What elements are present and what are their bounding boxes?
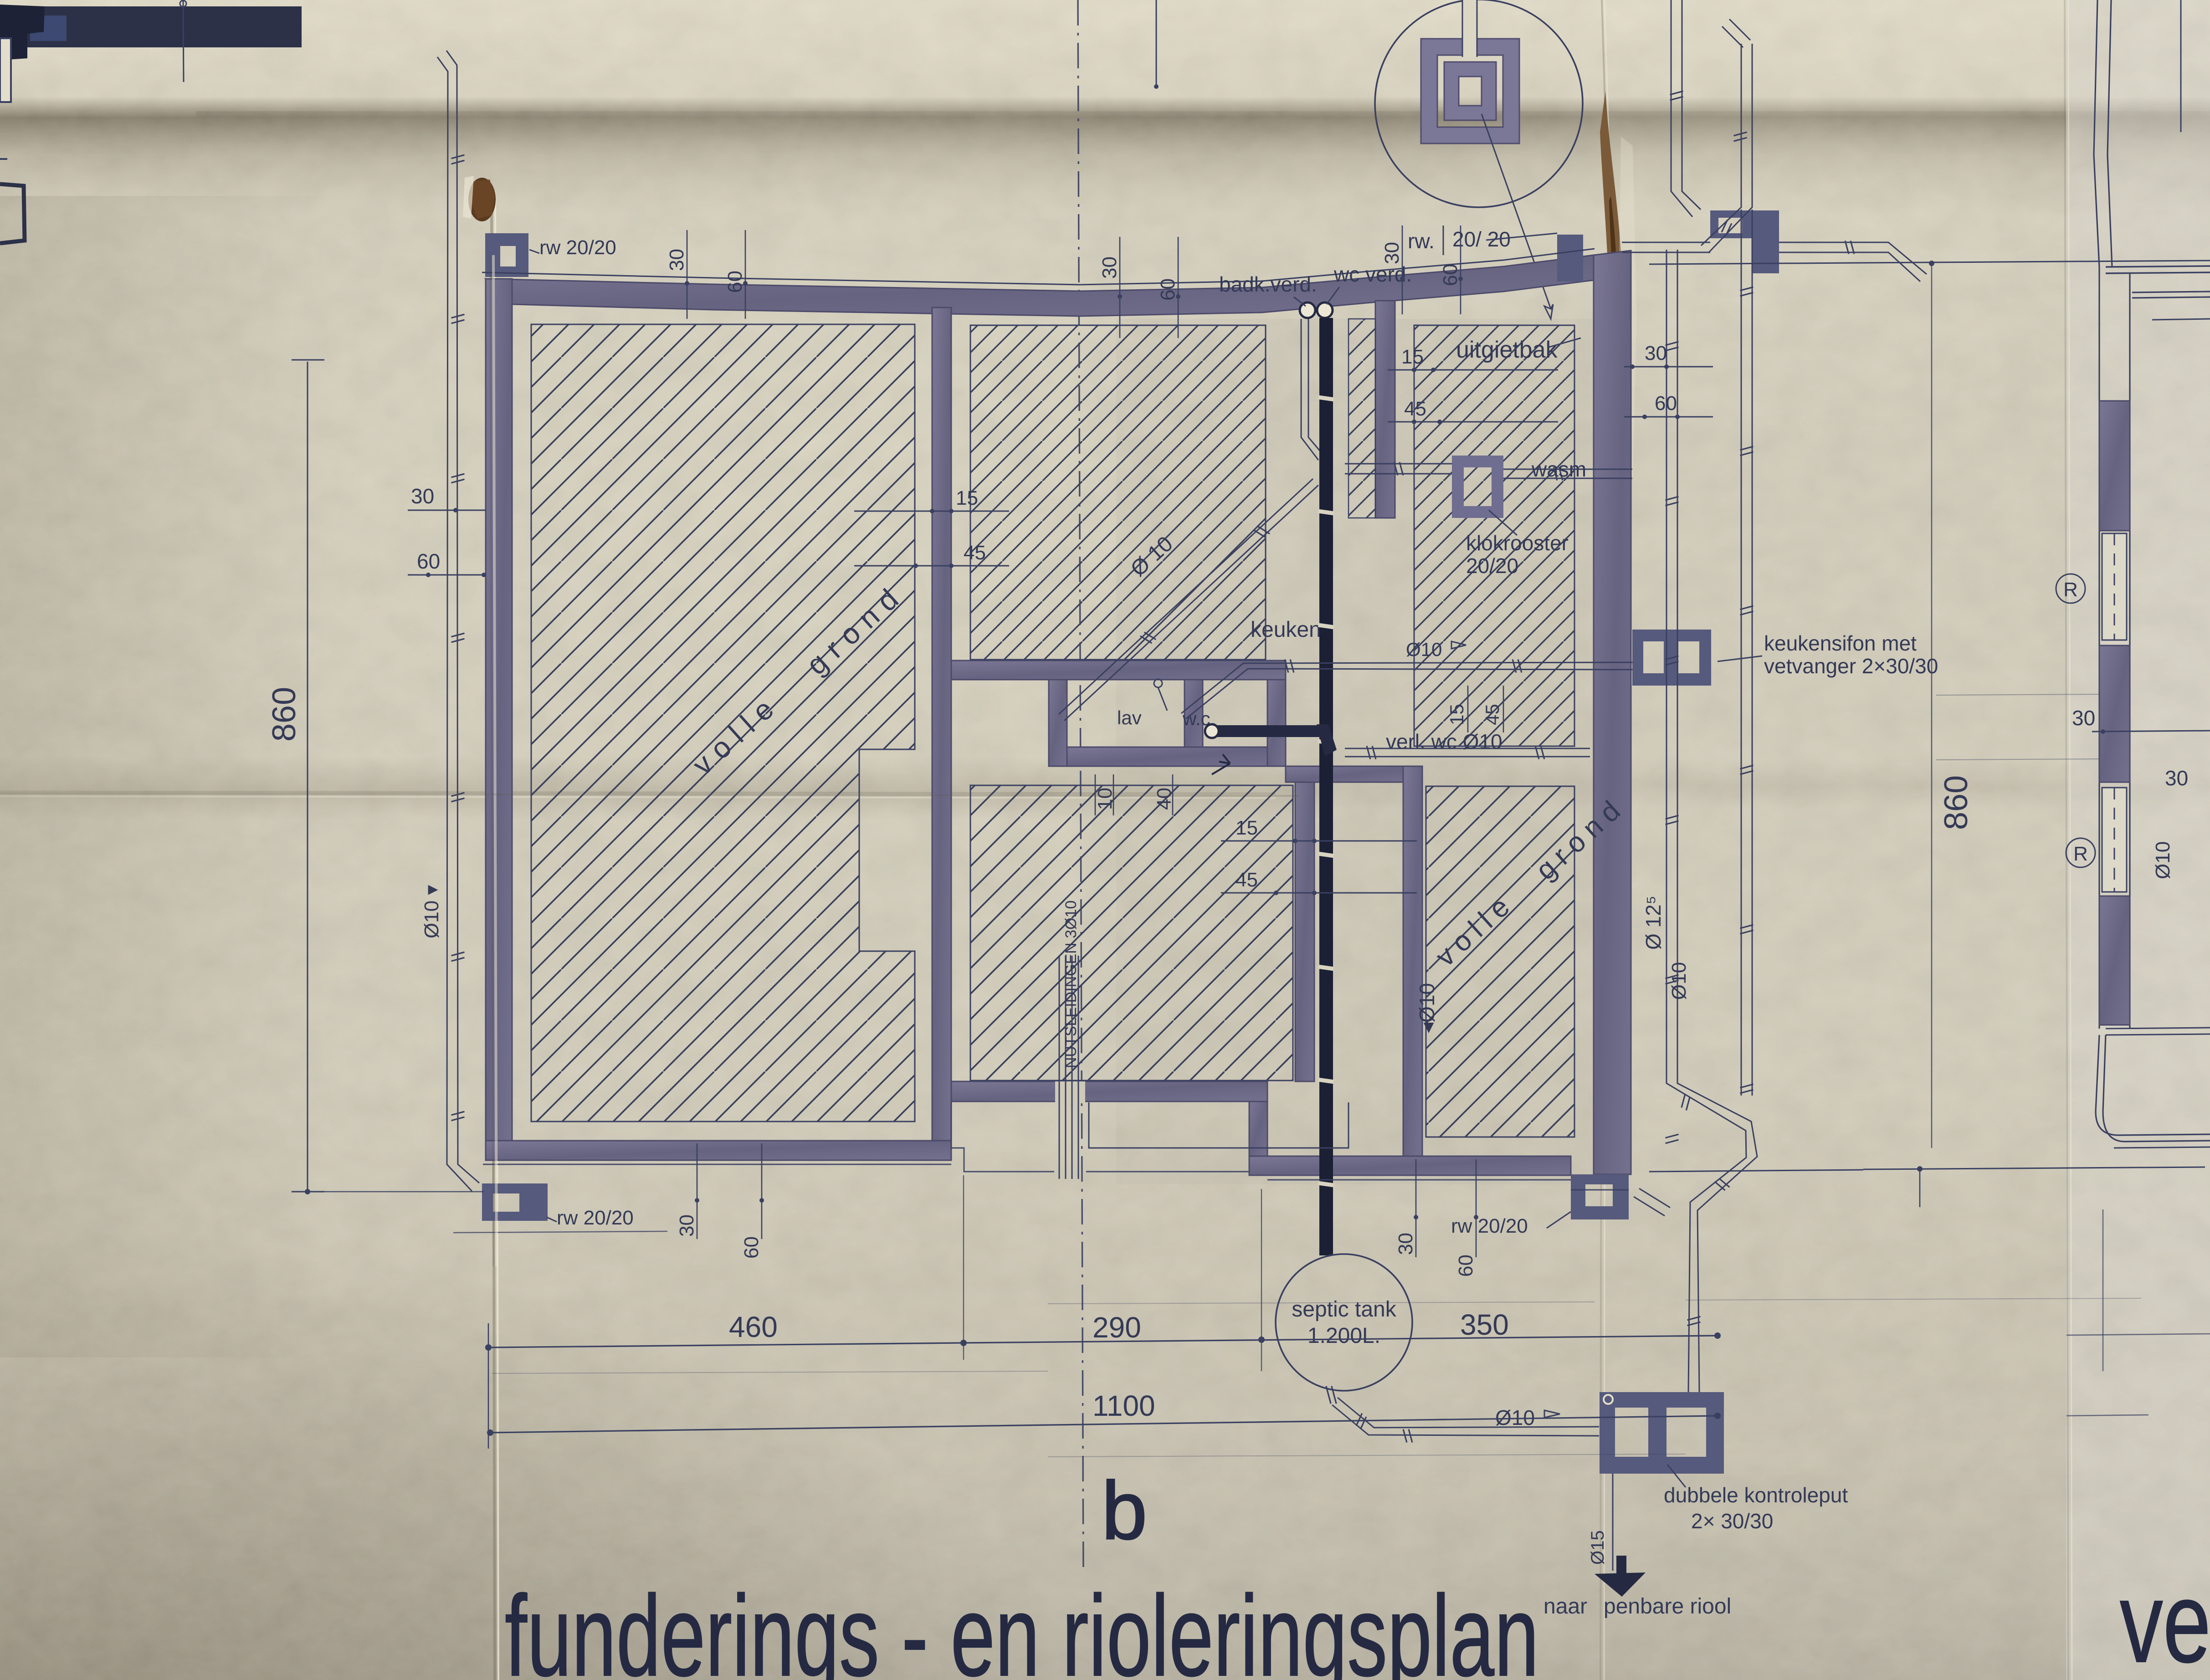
svg-text:penbare riool: penbare riool [1604,1594,1731,1619]
svg-text:30: 30 [411,484,434,508]
svg-text:460: 460 [729,1311,778,1343]
svg-text:Ø10: Ø10 [1406,639,1442,660]
svg-text:15: 15 [956,487,978,509]
svg-text:Ø10: Ø10 [1668,962,1690,1000]
svg-text:rw.: rw. [1408,229,1435,253]
svg-text:15: 15 [1401,346,1424,368]
svg-text:10: 10 [1094,788,1116,810]
svg-text:20/20: 20/20 [1466,554,1518,578]
svg-text:R: R [2063,579,2078,601]
svg-text:30: 30 [1381,242,1403,264]
svg-text:naar: naar [1543,1594,1587,1619]
svg-text:rw 20/20: rw 20/20 [1451,1215,1528,1237]
svg-text:badk.verd.: badk.verd. [1219,272,1317,296]
svg-text:dubbele kontroleput: dubbele kontroleput [1664,1483,1848,1507]
svg-text:vetvanger 2×30/30: vetvanger 2×30/30 [1764,654,1938,678]
svg-text:funderings - en rioleringsplan: funderings - en rioleringsplan [505,1572,1539,1680]
svg-text:60: 60 [724,271,746,293]
svg-text:uitgietbak: uitgietbak [1456,337,1558,363]
svg-text:860: 860 [266,687,303,742]
svg-text:keukensifon met: keukensifon met [1764,631,1917,655]
svg-text:NUTSLEIDINGEN 3Ø10: NUTSLEIDINGEN 3Ø10 [1062,901,1080,1068]
svg-text:rw 20/20: rw 20/20 [539,236,616,259]
svg-text:60: 60 [417,549,440,573]
svg-text:860: 860 [1938,775,1974,830]
svg-text:350: 350 [1460,1308,1509,1341]
svg-text:ve: ve [2120,1558,2210,1680]
svg-text:30: 30 [666,249,688,271]
svg-text:60: 60 [1439,264,1461,286]
svg-text:2× 30/30: 2× 30/30 [1691,1509,1773,1533]
svg-text:30: 30 [2165,766,2188,790]
svg-text:45: 45 [964,542,986,564]
svg-text:Ø15: Ø15 [1588,1530,1608,1565]
svg-text:290: 290 [1092,1311,1141,1344]
svg-text:Ø10: Ø10 [1495,1406,1535,1429]
svg-text:septic tank: septic tank [1292,1297,1396,1321]
svg-text:60: 60 [1455,1255,1477,1277]
svg-text:rw 20/20: rw 20/20 [557,1207,634,1229]
svg-text:◂Ø10: ◂Ø10 [1415,983,1439,1033]
svg-text:45: 45 [1482,704,1503,725]
svg-text:15: 15 [1446,704,1467,725]
svg-text:keuken: keuken [1251,618,1321,642]
svg-text:R: R [2073,843,2088,865]
svg-text:45: 45 [1236,869,1258,891]
svg-text:30: 30 [1645,342,1667,364]
svg-text:15: 15 [1236,817,1258,839]
svg-text:wc verd.: wc verd. [1333,262,1412,286]
svg-text:verl. wc Ø10: verl. wc Ø10 [1386,730,1502,753]
svg-text:60: 60 [1655,392,1677,415]
svg-text:40: 40 [1153,788,1175,810]
svg-text:b: b [1102,1465,1147,1557]
svg-text:30: 30 [2072,706,2095,730]
svg-text:30: 30 [1098,256,1121,279]
svg-text:1.200L.: 1.200L. [1308,1324,1380,1348]
svg-text:lav: lav [1117,707,1142,728]
svg-text:1100: 1100 [1092,1389,1155,1422]
svg-text:60: 60 [1157,278,1179,301]
svg-text:30: 30 [1395,1233,1417,1255]
svg-text:45: 45 [1404,398,1426,420]
svg-text:Ø 12⁵: Ø 12⁵ [1641,896,1665,950]
svg-text:Ø10 ▾: Ø10 ▾ [420,885,443,938]
svg-text:Ø10: Ø10 [2152,841,2174,879]
svg-text:60: 60 [740,1236,763,1259]
svg-text:30: 30 [676,1214,698,1237]
svg-text:wasm: wasm [1531,457,1586,481]
